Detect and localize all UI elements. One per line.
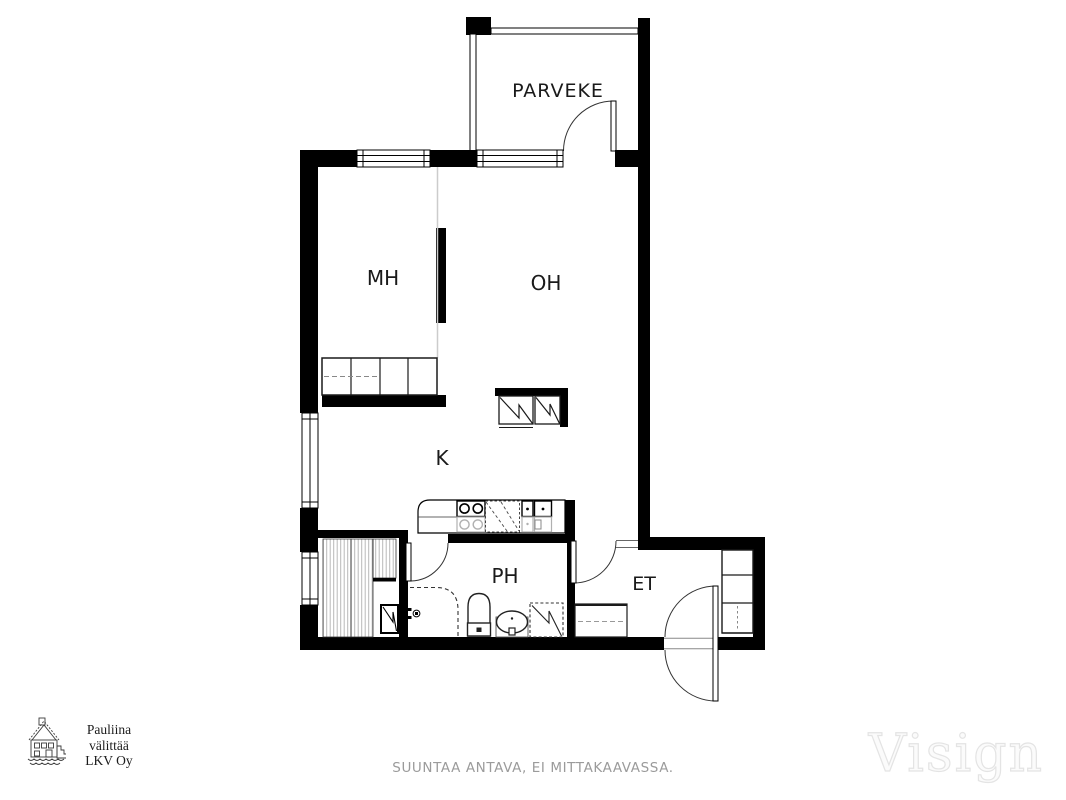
bathroom-fixtures <box>406 543 563 637</box>
visign-watermark: Visign <box>869 724 1044 784</box>
window-top-right <box>477 150 563 167</box>
balcony-pillar <box>466 17 491 35</box>
balcony-railing-top <box>491 28 638 34</box>
sauna-heater <box>381 605 398 633</box>
window-left-lower <box>302 552 318 605</box>
agency-name-line2: välittää <box>78 738 140 754</box>
entry-fixtures <box>571 541 753 702</box>
toilet <box>468 594 491 637</box>
dishwasher-reservation <box>486 501 520 532</box>
agency-name-line1: Pauliina <box>78 722 140 738</box>
window-left-upper <box>302 413 318 508</box>
room-label-entry: ET <box>632 573 656 595</box>
room-label-living-room: OH <box>531 271 562 295</box>
shower-faucet <box>408 608 420 619</box>
bedroom-wardrobe <box>322 358 437 395</box>
entry-wardrobe <box>722 550 753 633</box>
entrance-door <box>664 586 718 701</box>
balcony-railing-left <box>470 34 476 151</box>
kitchen-fixtures <box>418 500 565 533</box>
bathroom-door <box>406 543 448 581</box>
fireplace <box>495 388 568 428</box>
bathroom-entry-door <box>571 541 638 584</box>
window-top-left <box>357 150 430 167</box>
room-label-kitchen: K <box>435 446 449 470</box>
shower-reservation <box>530 603 563 637</box>
room-label-bedroom: MH <box>367 266 399 290</box>
washbasin <box>496 611 528 637</box>
entry-bench <box>575 604 627 637</box>
floorplan-page: PARVEKE MH OH K PH ET <box>0 0 1066 800</box>
sauna-bench-upper <box>373 539 396 578</box>
sauna-bench <box>323 539 351 637</box>
floor-plan: PARVEKE MH OH K PH ET <box>0 0 1066 800</box>
room-label-bathroom: PH <box>491 564 518 588</box>
room-label-balcony: PARVEKE <box>512 80 604 102</box>
balcony-door <box>564 101 617 151</box>
sauna-bench <box>351 539 373 637</box>
